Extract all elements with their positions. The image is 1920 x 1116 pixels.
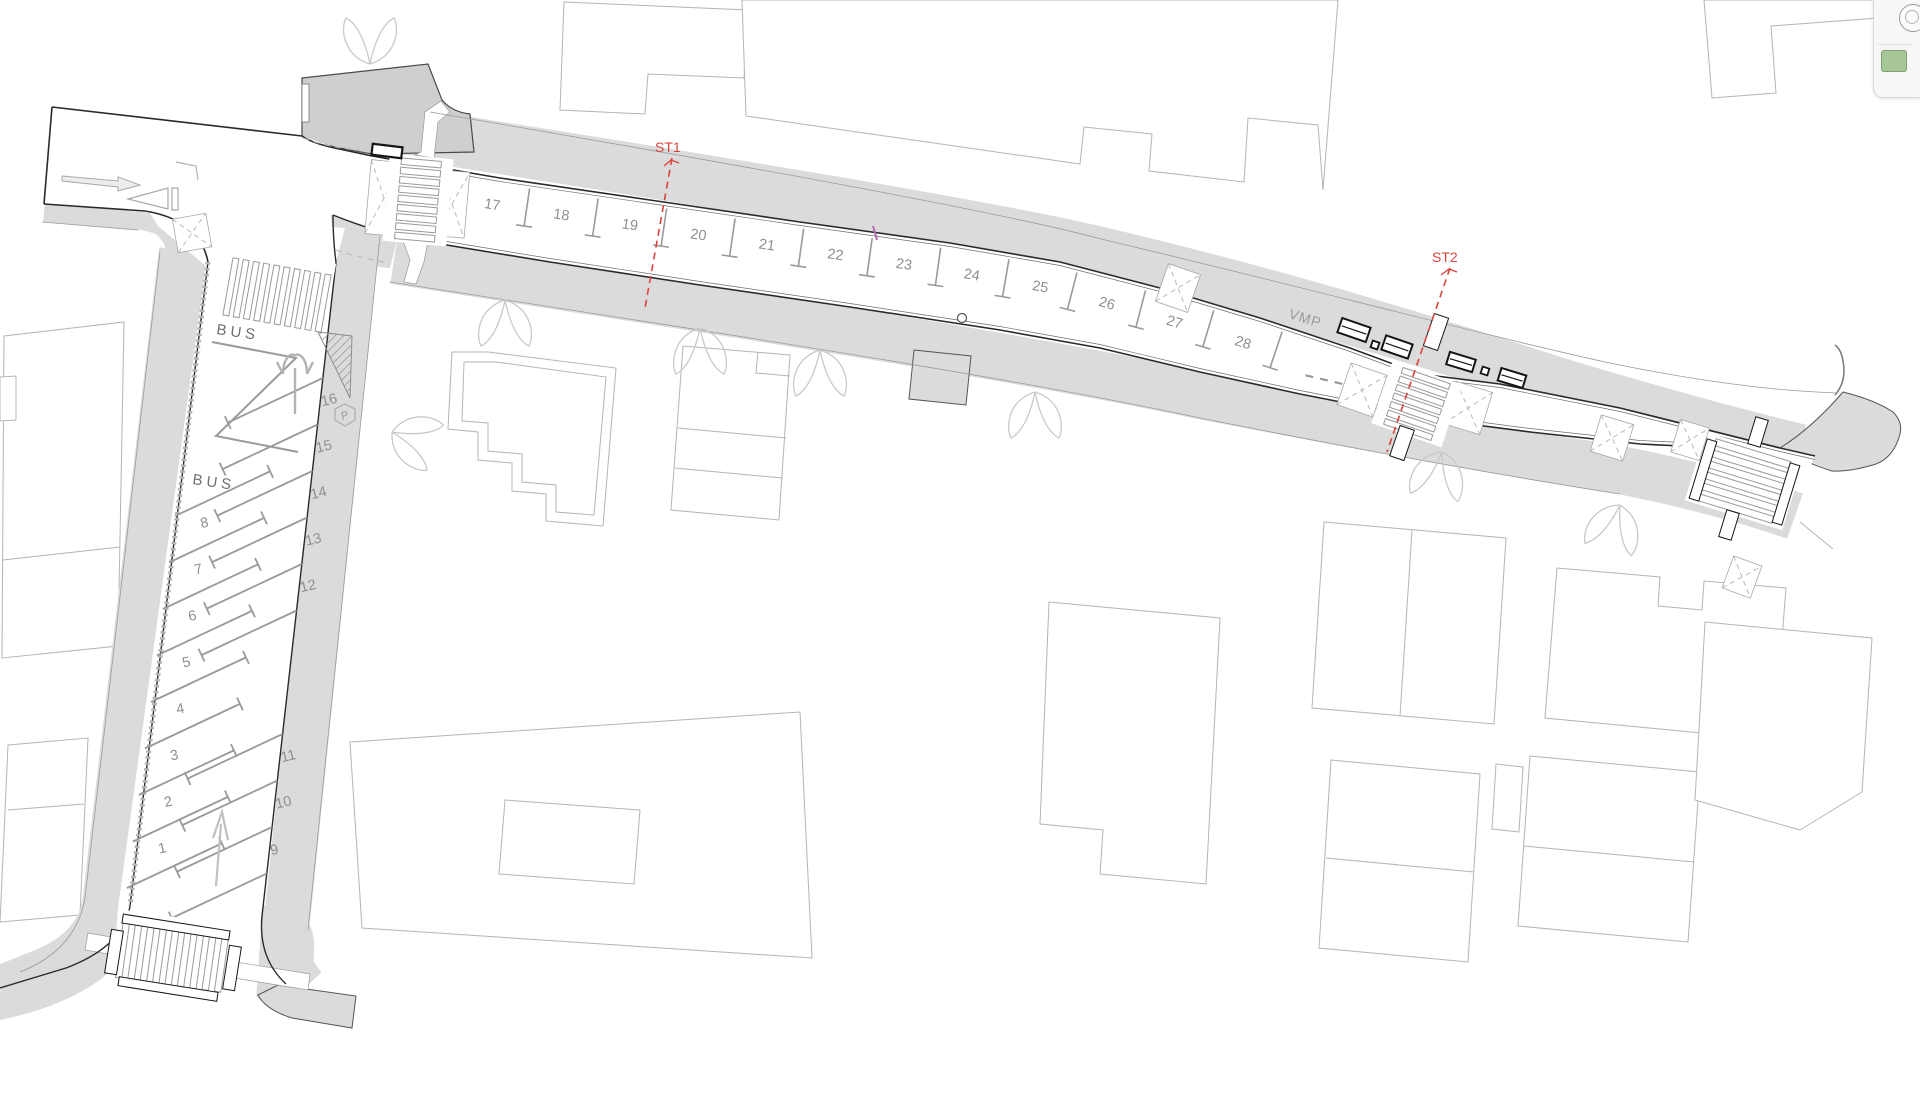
sidewalk-jut <box>909 350 971 405</box>
tree-symbol <box>794 350 847 396</box>
building <box>1492 764 1523 832</box>
parking-space-number: 19 <box>621 216 639 234</box>
tree-symbol <box>1583 498 1646 556</box>
corner-plaza <box>302 64 474 154</box>
tree-symbol <box>479 300 532 346</box>
bottom-sidewalk-foot <box>258 985 356 1028</box>
floating-tool-panel <box>1873 0 1920 98</box>
building <box>1695 622 1872 830</box>
parking-space-number: 23 <box>895 256 913 274</box>
bus-stop-post <box>1371 341 1380 350</box>
parking-space-number: 17 <box>483 196 502 215</box>
parking-space-number: 20 <box>689 226 707 244</box>
plaza-door-slot <box>302 84 309 122</box>
circle-icon[interactable] <box>1899 4 1920 32</box>
kerb-furniture <box>371 144 402 159</box>
st2-label: ST2 <box>1432 249 1458 265</box>
utility-marker <box>958 314 967 323</box>
site-plan-drawing: 1718192021222324252627288765432116151413… <box>0 0 1920 1116</box>
crossing-main-west <box>382 154 453 247</box>
sidewalk-outer-edge <box>1800 522 1833 549</box>
bus-stop-post <box>1481 367 1490 376</box>
slat-rect <box>1481 367 1490 376</box>
parking-space-number: 22 <box>826 246 844 264</box>
building <box>1312 522 1506 724</box>
building <box>1319 760 1480 962</box>
building <box>742 0 1338 190</box>
building <box>1518 756 1700 942</box>
street-end-hook <box>1835 345 1844 395</box>
building <box>2 322 124 658</box>
building <box>560 2 748 114</box>
green-file-icon[interactable] <box>1881 50 1907 72</box>
building <box>350 712 812 958</box>
parking-space-number: 25 <box>1031 278 1050 297</box>
tactile-rect <box>172 213 211 252</box>
tactile-area <box>172 213 211 252</box>
parking-space-number: 24 <box>962 266 981 285</box>
parking-space-number: 21 <box>758 236 776 254</box>
tree-symbol <box>1009 392 1062 438</box>
building <box>448 352 616 526</box>
building <box>0 738 88 922</box>
panel-divider <box>1878 44 1912 45</box>
slat-rect <box>1371 341 1380 350</box>
parking-space-number: 18 <box>552 206 570 224</box>
building <box>1040 602 1220 884</box>
slat-rect <box>371 144 402 159</box>
building <box>0 376 16 421</box>
tree-symbol <box>383 407 444 472</box>
site-plan-canvas: 1718192021222324252627288765432116151413… <box>0 0 1920 1116</box>
tree-symbol <box>344 18 397 64</box>
building <box>1704 0 1878 98</box>
st1-label: ST1 <box>655 139 681 155</box>
